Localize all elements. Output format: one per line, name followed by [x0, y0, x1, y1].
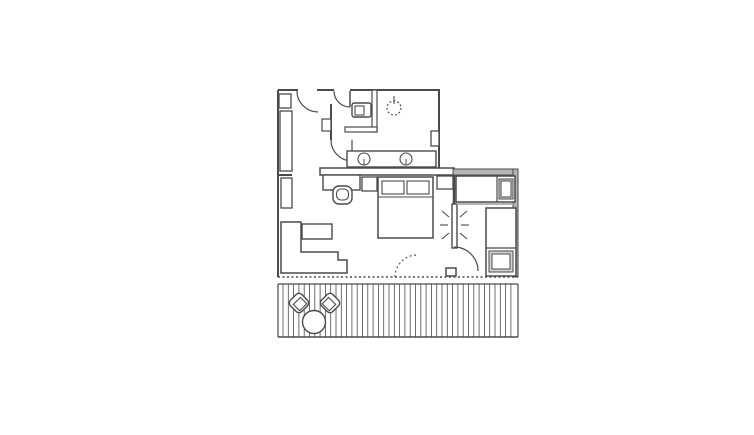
closet: [281, 178, 292, 208]
balcony-door-arc: [395, 255, 417, 277]
switch-box: [322, 119, 331, 131]
wall-wc-vertical: [372, 90, 377, 132]
wall-niche: [431, 131, 439, 146]
pillow-left: [382, 181, 404, 194]
floor-plan-svg: [0, 0, 754, 435]
mirror-ray-right-1: [460, 211, 467, 217]
wall-stub-door: [446, 268, 456, 276]
mirror-ray-left-1: [442, 211, 449, 217]
nightstand-left: [362, 177, 377, 191]
wardrobe: [280, 111, 292, 171]
floor-plan-canvas: [0, 0, 754, 435]
toilet-cistern: [355, 106, 364, 115]
second-room-door-arc: [454, 247, 478, 271]
coffee-table: [302, 224, 332, 239]
entry-door-arc: [297, 91, 318, 112]
bathroom-door-arc: [334, 91, 350, 107]
pillow-right: [407, 181, 429, 194]
wall-wc-horizontal: [345, 127, 377, 132]
wall-headboard: [320, 168, 454, 175]
mirror-ray-left-3: [442, 233, 449, 239]
wall-second-room-top: [453, 169, 518, 175]
mirror: [452, 204, 457, 248]
desk-chair-seat: [337, 189, 349, 200]
single-bed-top-pillow: [501, 181, 511, 197]
wall-pier: [279, 94, 291, 108]
single-bed-side-pillow: [492, 254, 510, 269]
patio-table: [303, 311, 326, 334]
mirror-ray-right-3: [460, 233, 467, 239]
nightstand-right: [437, 176, 453, 189]
